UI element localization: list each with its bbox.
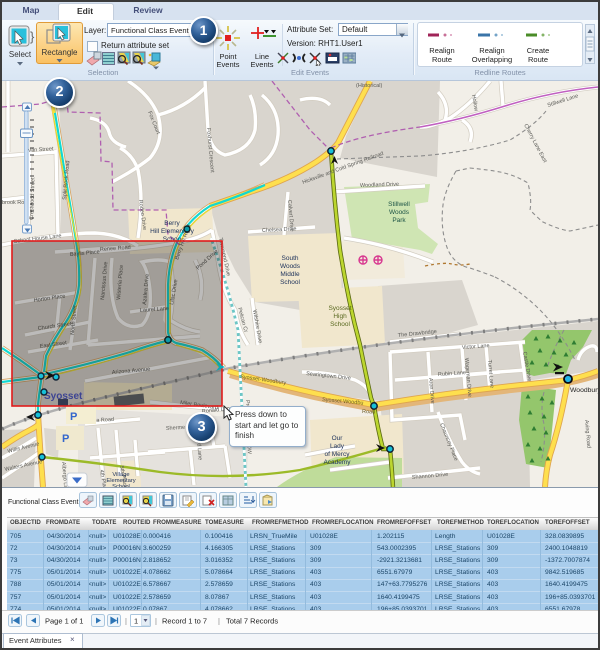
svg-text:Total 7 Records: Total 7 Records [226, 617, 278, 626]
svg-text:Woodbury: Woodbury [570, 387, 598, 394]
svg-text:Events: Events [251, 60, 274, 68]
svg-text:Woods: Woods [280, 263, 301, 270]
svg-text:|: | [125, 617, 127, 626]
svg-text:School: School [330, 321, 350, 328]
svg-text:Road: Road [362, 409, 375, 415]
svg-text:P: P [70, 411, 77, 423]
svg-text:Woods: Woods [389, 209, 410, 216]
svg-text:Academy: Academy [323, 459, 351, 466]
svg-text:(Historical): (Historical) [356, 83, 382, 89]
svg-text:Rectangle: Rectangle [41, 48, 78, 57]
svg-text:Overlapping: Overlapping [472, 55, 512, 64]
svg-text:Park: Park [392, 217, 406, 224]
svg-text:School: School [280, 279, 300, 286]
svg-text:Route: Route [528, 55, 548, 64]
svg-text:Middle: Middle [280, 271, 300, 278]
svg-text:Select: Select [9, 50, 32, 59]
svg-text:Realign: Realign [429, 46, 454, 55]
svg-text:Realign: Realign [479, 46, 504, 55]
svg-text:Lady: Lady [330, 443, 345, 450]
svg-text:Create: Create [527, 46, 550, 55]
svg-text:|: | [218, 617, 220, 626]
svg-text:Stillwell: Stillwell [388, 201, 410, 208]
svg-text:Page 1 of 1: Page 1 of 1 [45, 617, 83, 626]
svg-text:Berry: Berry [164, 220, 180, 227]
svg-text:P: P [62, 433, 69, 445]
svg-text:Events: Events [217, 60, 240, 68]
svg-text:}: } [30, 29, 35, 44]
svg-text:Syosset: Syosset [328, 305, 351, 312]
svg-text:South: South [282, 255, 299, 262]
svg-text:Record 1 to 7: Record 1 to 7 [162, 617, 207, 626]
svg-text:1: 1 [134, 617, 138, 626]
svg-text:Our: Our [332, 435, 344, 442]
svg-text:|: | [155, 617, 157, 626]
svg-text:Route: Route [432, 55, 452, 64]
svg-text:of Mercy: of Mercy [325, 451, 351, 458]
svg-text:High: High [333, 313, 347, 320]
